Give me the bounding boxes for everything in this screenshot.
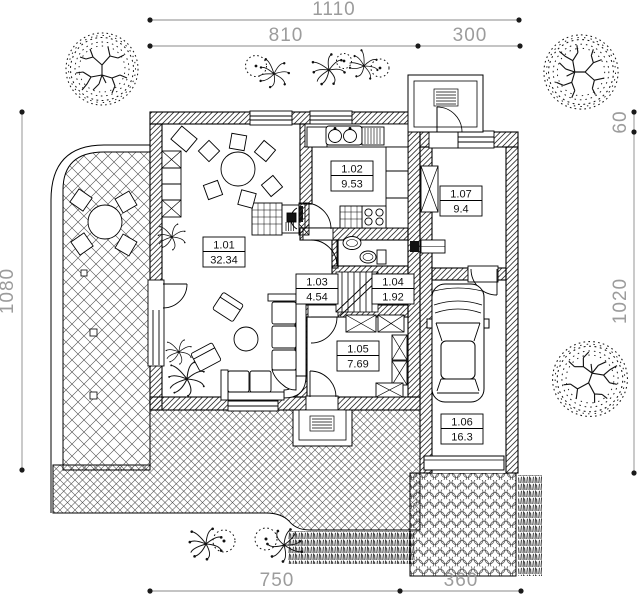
dim-bottom-left: 750 xyxy=(260,570,295,591)
room-number: 1.05 xyxy=(347,344,368,356)
terrace-crosshatch xyxy=(51,145,150,513)
floor-plan-drawing: 1.01 32.34 1.02 9.53 1.03 4.54 1.04 1.92… xyxy=(0,0,637,600)
room-number: 1.06 xyxy=(451,417,472,429)
room-area: 7.69 xyxy=(347,359,368,371)
shrub-row-top xyxy=(246,46,390,92)
dim-top-left: 810 xyxy=(269,25,304,46)
room-area: 16.3 xyxy=(451,432,472,444)
room-area: 4.54 xyxy=(306,292,327,304)
door-opening-room105 xyxy=(308,305,338,317)
window-top-1 xyxy=(250,111,292,125)
grass-strip-bottom xyxy=(288,531,415,564)
room-area: 9.53 xyxy=(341,179,362,191)
kitchen-base-cabinet xyxy=(340,206,362,228)
car-mirror xyxy=(484,319,489,328)
dim-left: 1080 xyxy=(0,268,18,314)
tree-icon xyxy=(531,320,637,438)
floor-plan-svg: 1.01 32.34 1.02 9.53 1.03 4.54 1.04 1.92… xyxy=(0,0,637,600)
understair-cabinets xyxy=(346,315,404,332)
kitchen-sink xyxy=(326,126,362,145)
doormat-entrance xyxy=(434,89,458,106)
chimney-flue-hall xyxy=(410,241,419,252)
grass-strip-right xyxy=(518,475,542,576)
kitchen-counter-right xyxy=(386,147,408,228)
room-label-107: 1.07 9.4 xyxy=(440,186,482,216)
kitchen-drainer xyxy=(362,127,384,145)
room-label-106: 1.06 16.3 xyxy=(441,414,483,444)
dim-bottom-right: 360 xyxy=(444,570,479,591)
kitchen-cabinet xyxy=(307,127,327,147)
window-terrace-door xyxy=(148,280,164,366)
room-number: 1.01 xyxy=(213,240,234,252)
door-opening-garage-room xyxy=(468,266,498,282)
car-mirror xyxy=(427,319,432,328)
window-top-2 xyxy=(310,111,352,125)
tree-icon xyxy=(58,25,147,114)
room-label-105: 1.05 7.69 xyxy=(337,341,379,371)
dining-table xyxy=(221,152,255,186)
car-icon xyxy=(427,284,489,402)
potted-plants-bottom xyxy=(189,524,305,565)
driveway-paving xyxy=(410,473,516,576)
room-number: 1.04 xyxy=(382,277,403,289)
dim-top-right: 300 xyxy=(453,25,488,46)
dim-right-top: 60 xyxy=(610,110,631,133)
room-number: 1.07 xyxy=(450,189,471,201)
toilet xyxy=(360,250,386,264)
door-opening-rear xyxy=(306,396,338,411)
room-area: 9.4 xyxy=(453,204,468,216)
room-number: 1.02 xyxy=(341,164,362,176)
porch-rear xyxy=(293,410,352,446)
fireplace xyxy=(252,203,309,235)
dim-top-total: 1110 xyxy=(312,0,355,20)
room-label-101: 1.01 32.34 xyxy=(203,237,245,267)
room-label-103: 1.03 4.54 xyxy=(296,274,338,304)
dim-right-bottom: 1020 xyxy=(610,278,631,324)
room-number: 1.03 xyxy=(306,277,327,289)
coffee-table xyxy=(234,327,258,351)
porch-entrance xyxy=(408,75,483,132)
stove xyxy=(362,206,386,228)
room-area: 32.34 xyxy=(210,255,238,267)
room-label-102: 1.02 9.53 xyxy=(331,161,373,191)
window-entry-side xyxy=(458,131,494,148)
room-label-104: 1.04 1.92 xyxy=(372,274,414,304)
garage-door xyxy=(424,456,504,470)
tree-icon xyxy=(535,26,626,117)
room-area: 1.92 xyxy=(382,292,403,304)
doormat-rear xyxy=(310,416,334,431)
door-opening-entrance xyxy=(429,131,458,148)
wall-shelving xyxy=(162,151,181,217)
